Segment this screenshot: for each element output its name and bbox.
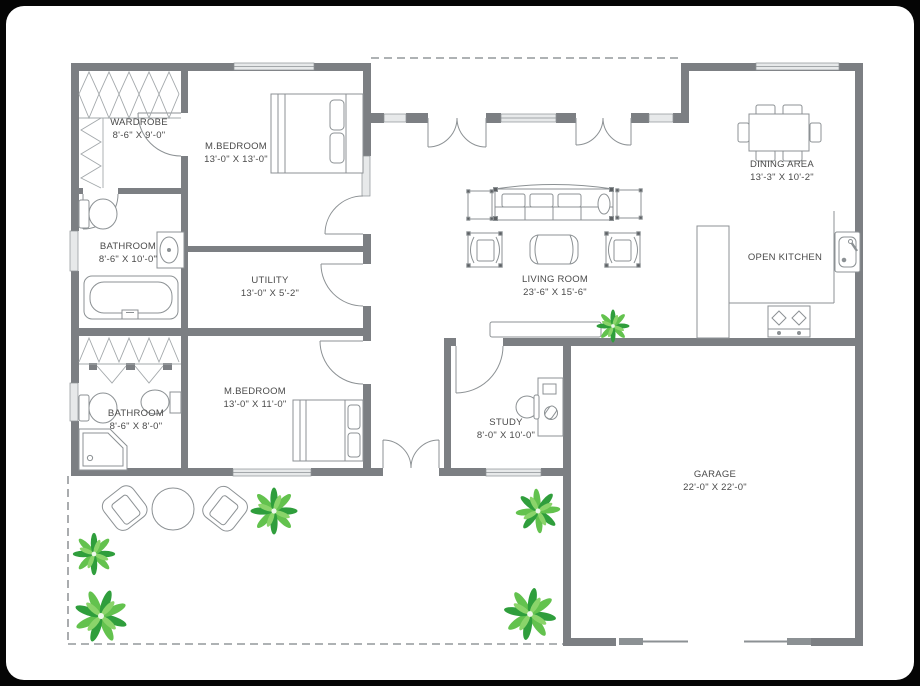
sofa (494, 185, 614, 221)
room-name: UTILITY (241, 275, 299, 288)
patio-chair (199, 483, 251, 535)
room-dims: 8'-6" X 8'-0" (108, 421, 164, 434)
room-name: BATHROOM (99, 241, 157, 254)
room-label-study: STUDY 8'-0" X 10'-0" (477, 417, 535, 442)
bed (293, 400, 363, 461)
room-label-master-bedroom-bottom: M.BEDROOM 13'-0" X 11'-0" (223, 386, 286, 411)
sideboard (490, 322, 601, 337)
desk-chair (516, 395, 539, 419)
room-label-living-room: LIVING ROOM 23'-6" X 15'-6" (522, 274, 588, 299)
armchair (467, 232, 502, 267)
room-dims: 13'-3" X 10'-2" (750, 172, 814, 185)
toilet (79, 199, 117, 229)
room-dims: 22'-0" X 22'-0" (683, 482, 747, 495)
page-background: WARDROBE 8'-6" X 9'-0" M.BEDROOM 13'-0" … (0, 0, 920, 686)
dining-table (738, 105, 821, 161)
room-label-utility: UTILITY 13'-0" X 5'-2" (241, 275, 299, 300)
room-dims: 13'-0" X 11'-0" (223, 399, 286, 412)
armchair (605, 232, 640, 267)
patio-chair (99, 482, 151, 534)
room-label-wardrobe: WARDROBE 8'-6" X 9'-0" (110, 117, 168, 142)
floor-plan-card: WARDROBE 8'-6" X 9'-0" M.BEDROOM 13'-0" … (6, 6, 914, 680)
room-dims: 8'-0" X 10'-0" (477, 430, 535, 443)
room-name: BATHROOM (108, 408, 164, 421)
room-name: LIVING ROOM (522, 274, 588, 287)
end-table (467, 190, 493, 220)
plant (597, 310, 630, 343)
stove (768, 306, 810, 337)
desk (538, 378, 563, 436)
room-label-bathroom-bottom: BATHROOM 8'-6" X 8'-0" (108, 408, 164, 433)
plant (500, 584, 561, 645)
porch-patio-dashed-outline (68, 58, 681, 644)
room-dims: 13'-0" X 5'-2" (241, 288, 299, 301)
floor-plan-drawing (6, 6, 914, 680)
room-label-dining-area: DINING AREA 13'-3" X 10'-2" (750, 159, 814, 184)
kitchen-sink (835, 232, 860, 272)
room-dims: 8'-6" X 9'-0" (110, 130, 168, 143)
plant (66, 581, 135, 650)
plant (507, 480, 570, 543)
room-name: WARDROBE (110, 117, 168, 130)
bed (271, 94, 363, 173)
room-label-open-kitchen: OPEN KITCHEN (748, 252, 822, 265)
plant (251, 488, 298, 535)
patio-table (152, 488, 194, 530)
corner-shower (79, 429, 127, 470)
room-name: M.BEDROOM (223, 386, 286, 399)
room-name: GARAGE (683, 469, 747, 482)
room-name: DINING AREA (750, 159, 814, 172)
kitchen-counter (697, 211, 834, 338)
coffee-table (530, 235, 578, 264)
room-label-bathroom-top: BATHROOM 8'-6" X 10'-0" (99, 241, 157, 266)
room-dims: 8'-6" X 10'-0" (99, 254, 157, 267)
room-label-master-bedroom-top: M.BEDROOM 13'-0" X 13'-0" (204, 141, 268, 166)
room-dims: 23'-6" X 15'-6" (522, 287, 588, 300)
floor-plan: WARDROBE 8'-6" X 9'-0" M.BEDROOM 13'-0" … (6, 6, 914, 680)
room-name: M.BEDROOM (204, 141, 268, 154)
end-table (616, 189, 642, 219)
plant (73, 533, 115, 575)
room-name: STUDY (477, 417, 535, 430)
walls (71, 63, 863, 646)
garage-door (619, 638, 811, 645)
room-name: OPEN KITCHEN (748, 252, 822, 265)
bathtub (84, 276, 178, 319)
room-dims: 13'-0" X 13'-0" (204, 154, 268, 167)
room-label-garage: GARAGE 22'-0" X 22'-0" (683, 469, 747, 494)
closet-hatch (79, 338, 181, 383)
bathroom-sink (157, 232, 184, 268)
